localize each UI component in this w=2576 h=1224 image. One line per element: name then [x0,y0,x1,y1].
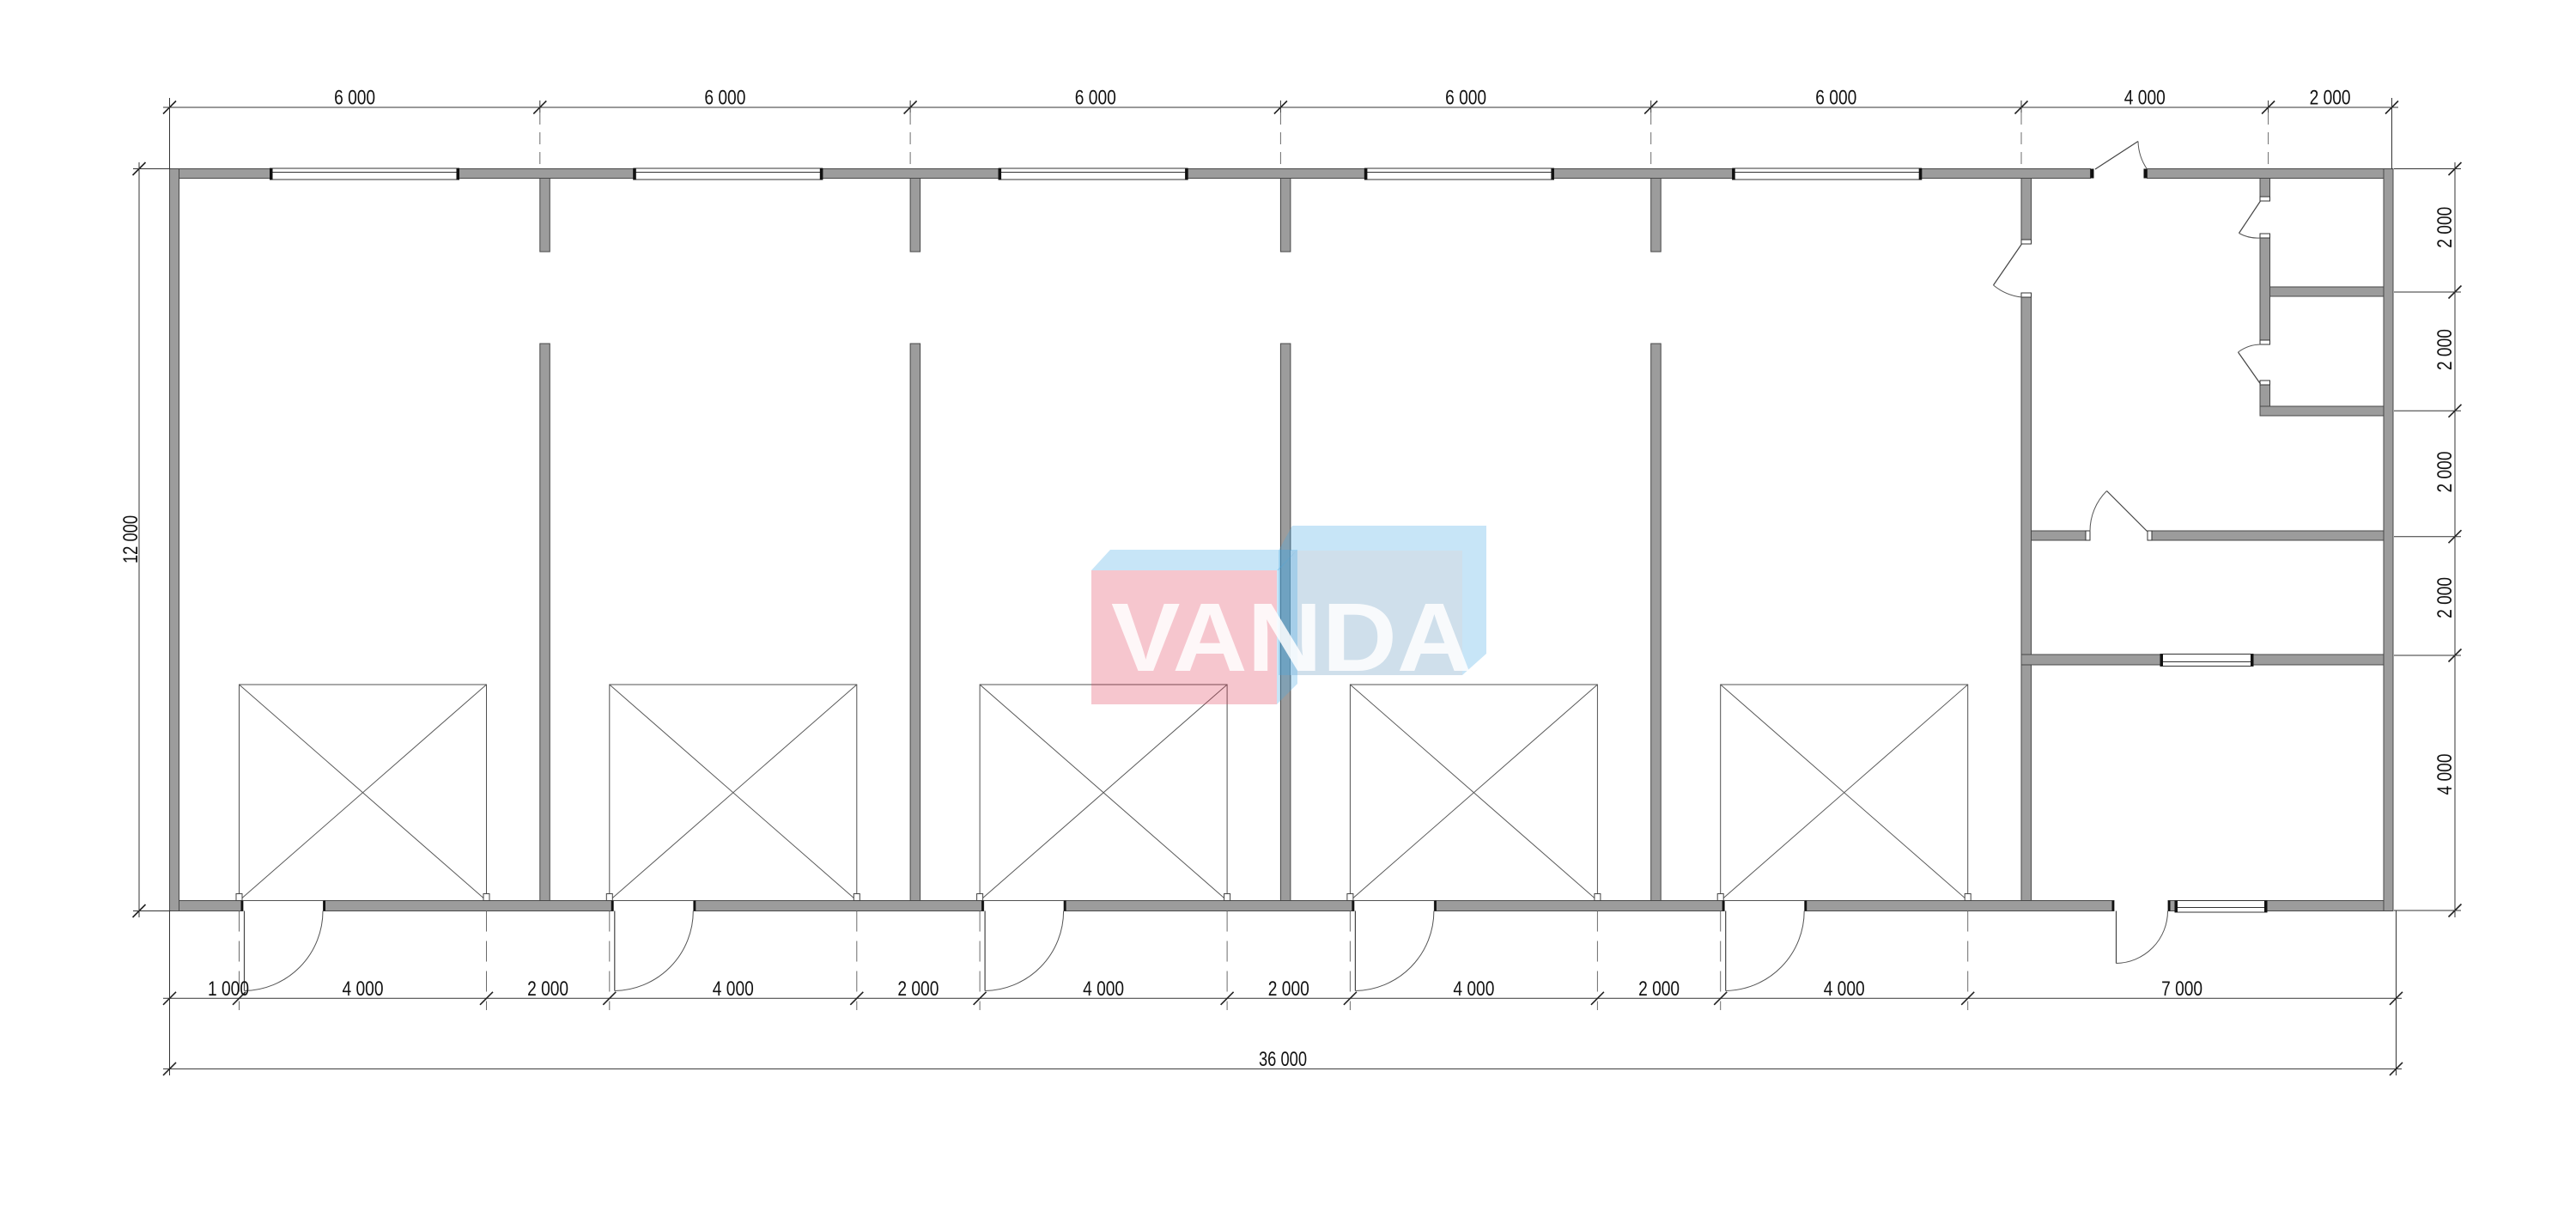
svg-text:VANDA: VANDA [1111,583,1472,691]
svg-text:6 000: 6 000 [1815,87,1856,110]
svg-text:2 000: 2 000 [2433,329,2457,370]
svg-text:6 000: 6 000 [704,87,745,110]
svg-text:6 000: 6 000 [1075,87,1116,110]
svg-text:2 000: 2 000 [2433,577,2457,618]
svg-text:4 000: 4 000 [2433,754,2457,795]
svg-text:12 000: 12 000 [119,515,143,563]
svg-text:36 000: 36 000 [1259,1048,1307,1071]
svg-text:2 000: 2 000 [1268,977,1309,1001]
svg-text:4 000: 4 000 [1824,977,1865,1001]
svg-text:2 000: 2 000 [897,977,939,1001]
svg-text:6 000: 6 000 [1445,87,1486,110]
svg-text:2 000: 2 000 [1638,977,1680,1001]
svg-text:4 000: 4 000 [343,977,384,1001]
svg-text:4 000: 4 000 [1083,977,1124,1001]
svg-text:4 000: 4 000 [1453,977,1494,1001]
svg-text:2 000: 2 000 [2433,207,2457,248]
svg-text:6 000: 6 000 [334,87,375,110]
svg-text:4 000: 4 000 [2124,87,2166,110]
svg-text:2 000: 2 000 [2310,87,2351,110]
svg-text:2 000: 2 000 [527,977,568,1001]
svg-text:4 000: 4 000 [713,977,754,1001]
svg-text:7 000: 7 000 [2161,977,2202,1001]
svg-text:1 000: 1 000 [208,977,249,1001]
svg-text:2 000: 2 000 [2433,452,2457,493]
